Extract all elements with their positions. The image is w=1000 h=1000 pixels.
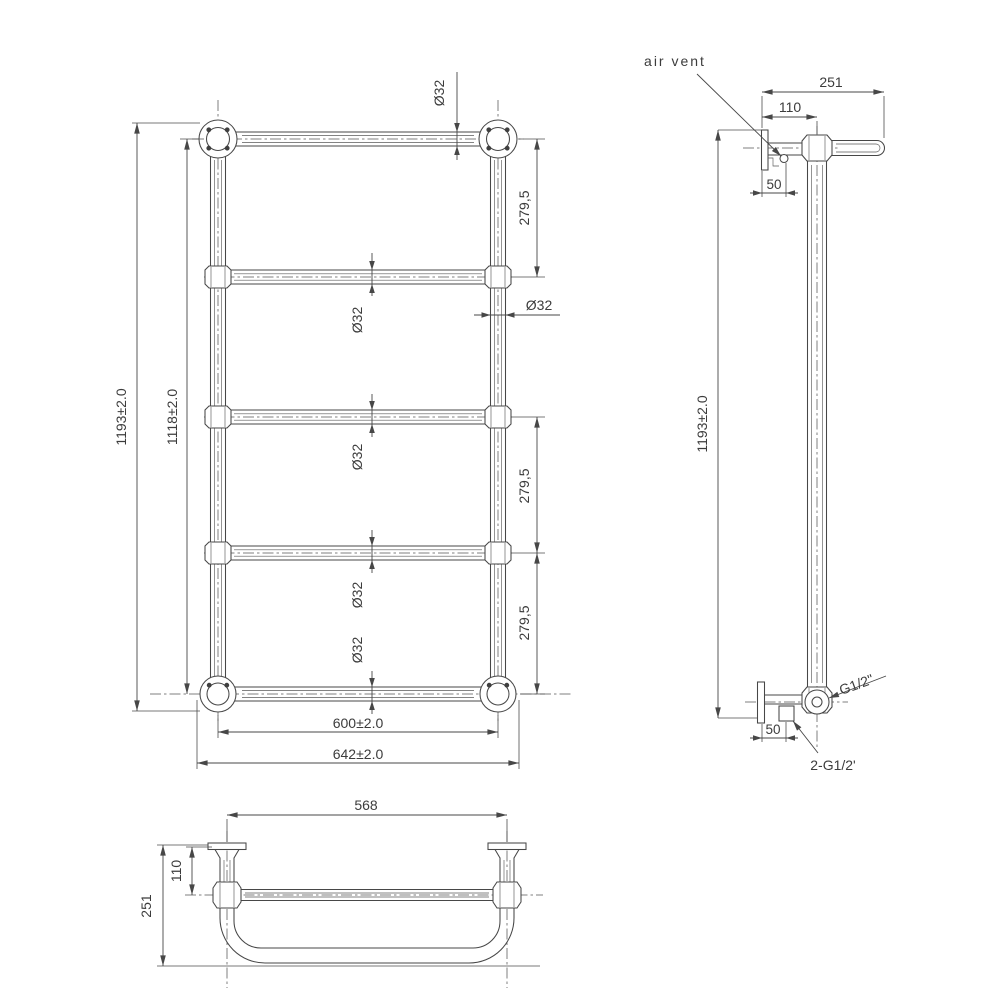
- front-view: 1193±2.0 1118±2.0 Ø32 279,5 Ø32 Ø32 Ø32 …: [113, 72, 572, 769]
- front-dim-dia-bar4: Ø32: [349, 582, 365, 609]
- thread-bottom-label: 2-G1/2': [810, 757, 855, 773]
- side-dim-depth-overall: 251: [819, 74, 843, 90]
- front-dim-spacing-top: 279,5: [516, 190, 532, 225]
- thread-top-label: G1/2": [837, 671, 876, 698]
- front-dim-height-centers: 1118±2.0: [164, 389, 180, 445]
- front-dim-width-overall: 642±2.0: [333, 746, 384, 762]
- drawing-sheet: 1193±2.0 1118±2.0 Ø32 279,5 Ø32 Ø32 Ø32 …: [0, 0, 1000, 1000]
- side-bottom-wall-plate: [758, 682, 765, 723]
- union-connection: [805, 690, 829, 714]
- side-view: air vent 251 110 50 1193±2.0 G1/2" 50 2-…: [644, 53, 886, 773]
- side-top-wall-plate: [762, 130, 769, 170]
- bottom-centerlines: [185, 831, 543, 988]
- bottom-left-flange: [208, 843, 246, 850]
- technical-drawing: 1193±2.0 1118±2.0 Ø32 279,5 Ø32 Ø32 Ø32 …: [0, 0, 1000, 1000]
- front-dim-dia-right-post: Ø32: [526, 297, 553, 313]
- bottom-structure: [208, 843, 526, 963]
- bottom-dim-bracket-offset: 110: [168, 860, 184, 883]
- bottom-dim-width-brackets: 568: [354, 797, 378, 813]
- front-dim-height-overall: 1193±2.0: [113, 388, 129, 445]
- side-dim-bracket-top: 50: [766, 177, 781, 192]
- front-dim-dia-bar5: Ø32: [349, 637, 365, 664]
- side-structure: [758, 130, 885, 723]
- air-vent-label: air vent: [644, 53, 706, 69]
- bottom-view: 568 110 251: [138, 797, 543, 988]
- side-centerlines: [743, 126, 848, 748]
- side-dimension-lines: [697, 74, 886, 753]
- front-corner-fittings: [199, 120, 517, 712]
- side-dim-bracket-offset: 110: [779, 99, 802, 115]
- front-dim-spacing-mid: 279,5: [516, 468, 532, 503]
- front-dim-dia-top-bar: Ø32: [431, 80, 447, 107]
- bottom-dim-depth-overall: 251: [138, 894, 154, 918]
- bottom-right-flange: [488, 843, 526, 850]
- front-dim-spacing-bottom: 279,5: [516, 605, 532, 640]
- side-dim-height-overall: 1193±2.0: [694, 395, 710, 452]
- front-dim-dia-bar2: Ø32: [349, 307, 365, 334]
- front-dim-dia-bar3: Ø32: [349, 444, 365, 471]
- front-tubes: [211, 132, 506, 701]
- side-dim-bracket-bottom: 50: [765, 722, 780, 737]
- valve-body: [779, 706, 794, 721]
- front-dim-width-centers: 600±2.0: [333, 715, 384, 731]
